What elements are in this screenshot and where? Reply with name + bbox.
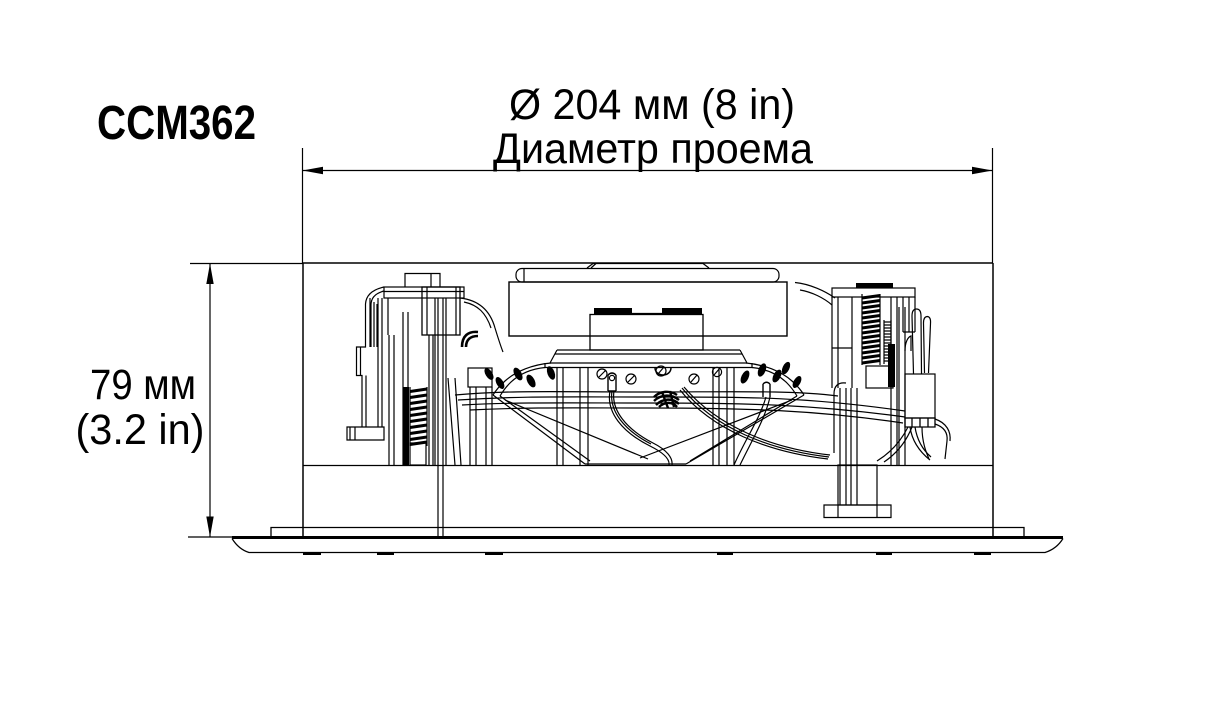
svg-text:Ø 204 мм (8 in): Ø 204 мм (8 in): [509, 81, 795, 129]
svg-text:(3.2 in): (3.2 in): [76, 406, 205, 454]
svg-text:CCM362: CCM362: [97, 96, 256, 150]
svg-text:Диаметр проема: Диаметр проема: [493, 125, 813, 173]
svg-text:79 мм: 79 мм: [90, 361, 196, 409]
